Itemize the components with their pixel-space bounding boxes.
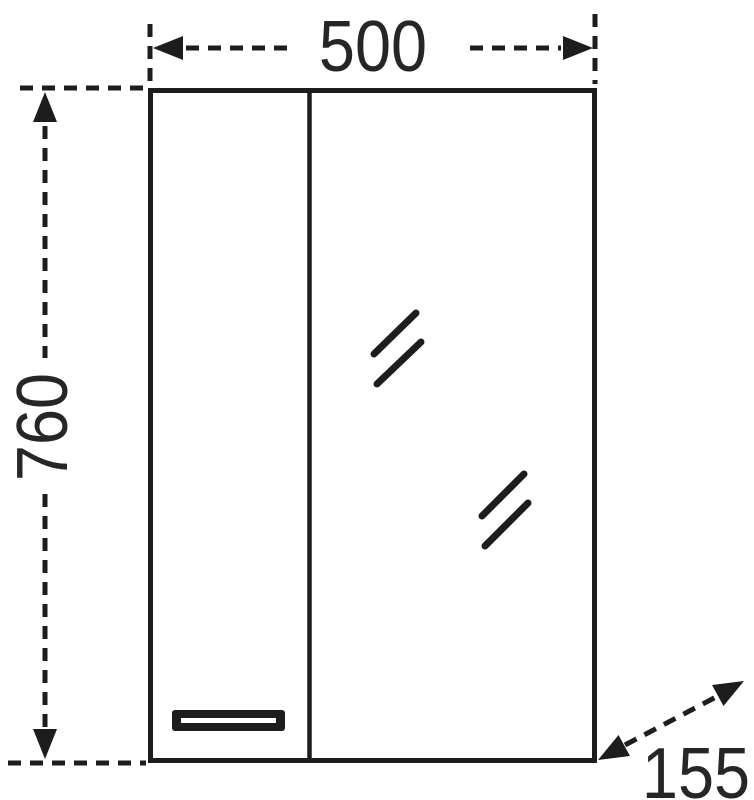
dimension-diagram-canvas: 500 760 155 (0, 0, 754, 800)
depth-dimension-label: 155 (636, 741, 754, 800)
door-handle (172, 710, 285, 731)
width-dimension-label: 500 (307, 14, 438, 80)
arrow-down-left-icon (598, 735, 630, 760)
arrow-right-icon (563, 36, 593, 60)
height-dimension-label: 760 (10, 367, 76, 488)
cabinet-outline (151, 91, 595, 761)
mirror-glint-icon (374, 313, 528, 546)
arrow-up-right-icon (712, 681, 744, 706)
arrow-left-icon (153, 36, 183, 60)
arrow-down-icon (33, 729, 57, 759)
cabinet-body-rect (151, 91, 595, 761)
cabinet-dimension-drawing (0, 0, 754, 800)
arrow-up-icon (33, 92, 57, 122)
glint-line (374, 313, 416, 354)
